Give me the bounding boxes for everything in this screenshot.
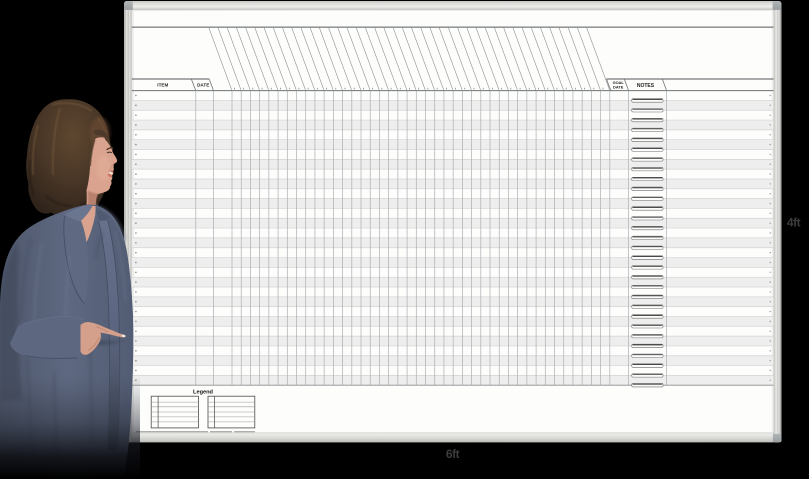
svg-text:DATE: DATE [197, 83, 209, 88]
svg-text:4ft: 4ft [787, 216, 801, 230]
svg-text:ITEM: ITEM [157, 83, 168, 88]
svg-text:DATE: DATE [613, 85, 624, 90]
svg-text:6ft: 6ft [446, 447, 460, 461]
svg-text:NOTES: NOTES [637, 83, 655, 89]
svg-text:Legend: Legend [193, 389, 213, 395]
